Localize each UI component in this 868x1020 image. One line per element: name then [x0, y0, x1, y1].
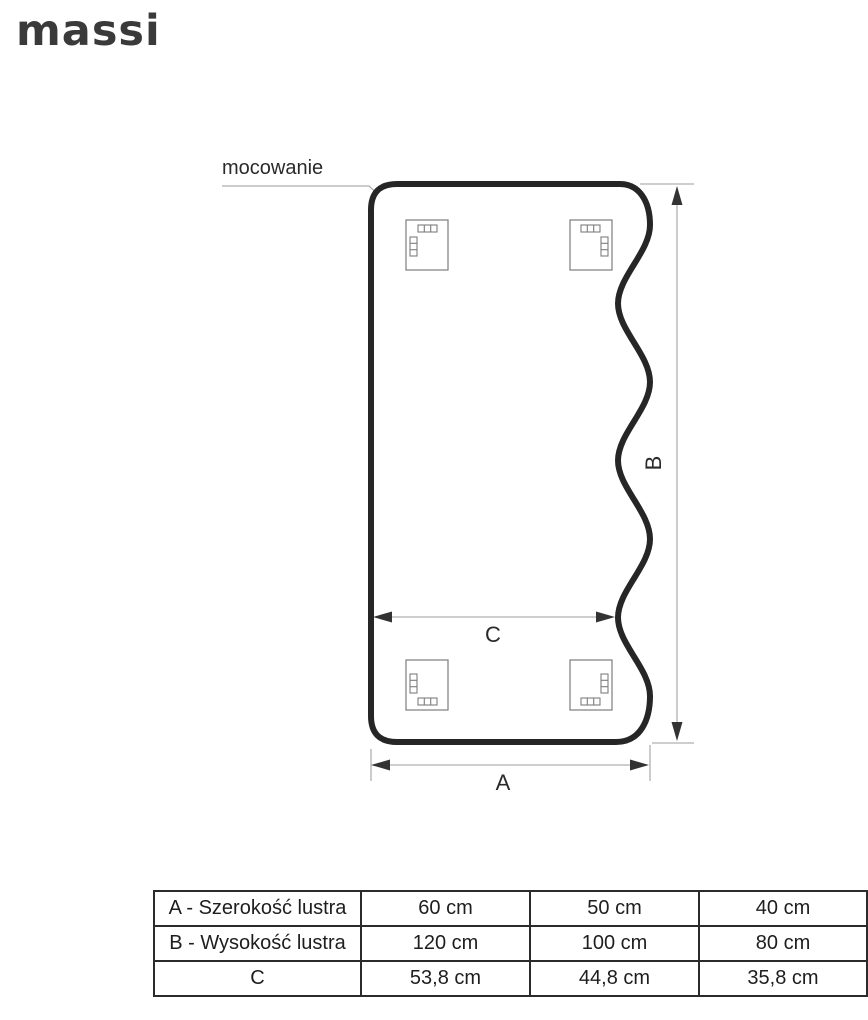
mounting-bracket-top-right — [570, 220, 612, 270]
dimension-a: A — [371, 745, 650, 795]
arrowhead-right-icon — [630, 760, 649, 771]
mounting-bracket-bottom-right — [570, 660, 612, 710]
dimension-c-label: C — [485, 622, 501, 647]
mirror-dimension-diagram: B C A mocowanie — [0, 0, 868, 840]
table-cell: 35,8 cm — [699, 961, 867, 996]
table-cell: 60 cm — [361, 891, 530, 926]
row-label: B - Wysokość lustra — [154, 926, 361, 961]
table-row-width: A - Szerokość lustra 60 cm 50 cm 40 cm — [154, 891, 867, 926]
table-cell: 50 cm — [530, 891, 699, 926]
mounting-bracket-top-left — [406, 220, 448, 270]
table-row-height: B - Wysokość lustra 120 cm 100 cm 80 cm — [154, 926, 867, 961]
arrowhead-left-icon — [371, 760, 390, 771]
table-cell: 40 cm — [699, 891, 867, 926]
dimension-b: B — [640, 184, 694, 743]
dimensions-table: A - Szerokość lustra 60 cm 50 cm 40 cm B… — [153, 890, 868, 997]
table-row-inner-width: C 53,8 cm 44,8 cm 35,8 cm — [154, 961, 867, 996]
mounting-bracket-bottom-left — [406, 660, 448, 710]
row-label: A - Szerokość lustra — [154, 891, 361, 926]
arrowhead-up-icon — [672, 186, 683, 205]
dimension-a-label: A — [496, 770, 511, 795]
mounting-note-label: mocowanie — [222, 157, 323, 179]
dimension-b-label: B — [641, 456, 666, 471]
table-cell: 53,8 cm — [361, 961, 530, 996]
table-cell: 80 cm — [699, 926, 867, 961]
table-cell: 100 cm — [530, 926, 699, 961]
product-spec-page: massi — [0, 0, 868, 1020]
table-cell: 120 cm — [361, 926, 530, 961]
table-cell: 44,8 cm — [530, 961, 699, 996]
row-label: C — [154, 961, 361, 996]
arrowhead-down-icon — [672, 722, 683, 741]
